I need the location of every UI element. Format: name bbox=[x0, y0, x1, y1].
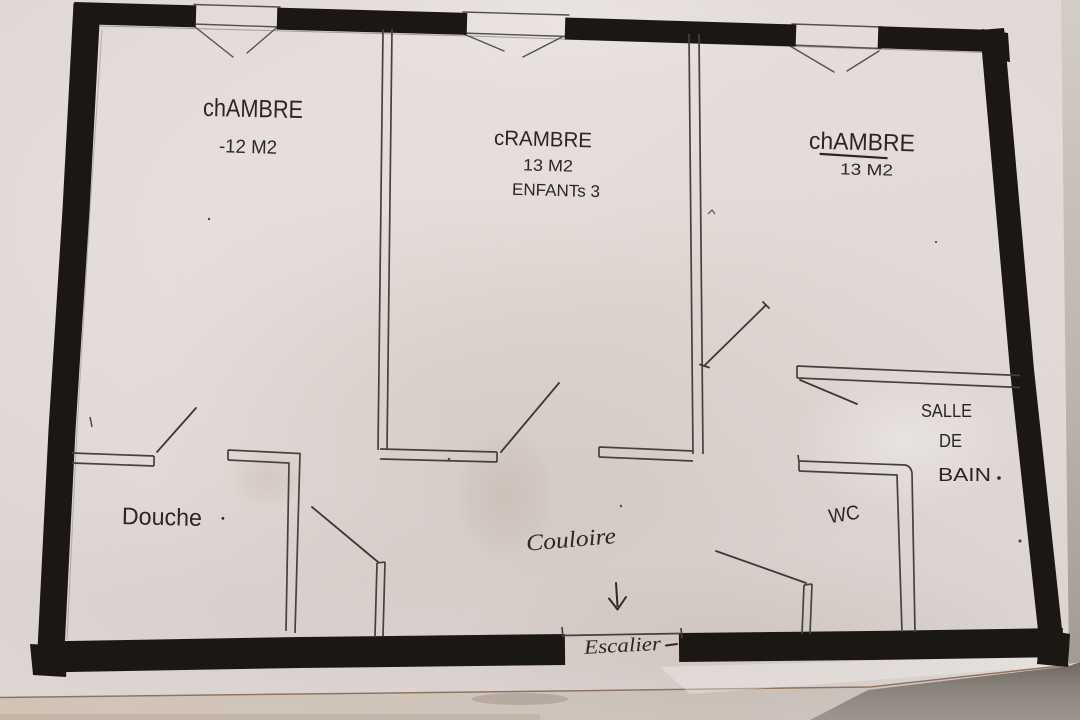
svg-text:BAIN: BAIN bbox=[938, 465, 991, 485]
svg-text:DE: DE bbox=[939, 431, 962, 451]
svg-text:Douche: Douche bbox=[122, 503, 203, 532]
svg-text:chAMBRE: chAMBRE bbox=[203, 94, 304, 124]
svg-text:13 M2: 13 M2 bbox=[840, 161, 894, 179]
svg-text:Escalier: Escalier bbox=[582, 633, 661, 659]
svg-text:-12 M2: -12 M2 bbox=[219, 136, 278, 159]
svg-text:13 M2: 13 M2 bbox=[523, 156, 573, 175]
svg-text:ENFANTs 3: ENFANTs 3 bbox=[512, 180, 600, 201]
svg-text:cRAMBRE: cRAMBRE bbox=[494, 127, 593, 153]
svg-text:chAMBRE: chAMBRE bbox=[809, 128, 916, 158]
svg-text:SALLE: SALLE bbox=[921, 401, 972, 421]
